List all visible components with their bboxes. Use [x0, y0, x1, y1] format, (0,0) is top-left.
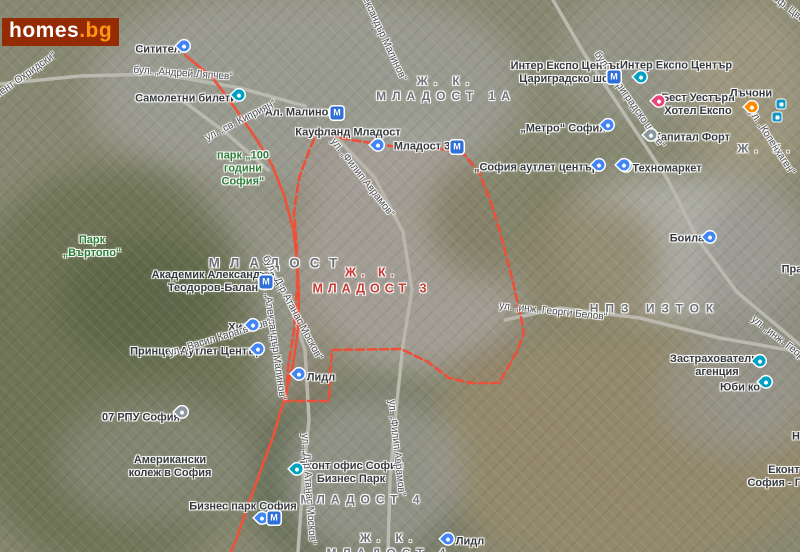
place-label-kaufland-mladost[interactable]: Кауфланд Младост: [295, 127, 400, 140]
district-label-mladost-3: Ж. К.МЛАДОСТ 3: [312, 264, 431, 296]
kaufland-pin-dot: [375, 142, 381, 148]
place-label-park-100-godini-sofia[interactable]: парк „100годиниСофия“: [217, 150, 269, 189]
place-label-american-college-sofia[interactable]: Американскиколеж в София: [129, 454, 212, 480]
hit-pin-dot: [250, 322, 256, 328]
place-label-lachoni[interactable]: Лъчони: [730, 88, 772, 101]
bus-stop-2-icon[interactable]: [773, 113, 782, 122]
boila-pin-dot: [707, 234, 713, 240]
district-label-zhk-mladost-4: Ж. К.МЛАДОСТ 4: [326, 530, 451, 552]
inter-expo-center-pin-dot: [638, 74, 644, 80]
place-label-praktiker[interactable]: Практикер: [782, 264, 800, 277]
place-label-metro-sofia[interactable]: „Метро“ София: [520, 123, 606, 136]
mladost-3-metro-icon[interactable]: М: [451, 141, 464, 154]
bus-stop-1-icon[interactable]: [777, 100, 786, 109]
map-viewport[interactable]: homes.bg Ж. К.МЛАДОСТ 1АМЛАДОСТЖ. К.МЛАД…: [0, 0, 800, 552]
kapital-fort-pin-dot: [648, 132, 654, 138]
ekont-business-park-pin-dot: [294, 466, 300, 472]
place-label-rpu-07-sofia[interactable]: 07 РПУ София: [102, 412, 180, 425]
samoletni-bileti-pin-dot: [236, 92, 242, 98]
al-malinov-metro-icon[interactable]: М: [331, 107, 344, 120]
place-label-zastrahovatelna-agencia[interactable]: Застрахователнаагенция: [670, 353, 764, 379]
place-label-boila[interactable]: Боила: [670, 233, 705, 246]
inter-expo-metro-icon[interactable]: М: [608, 71, 621, 84]
lachoni-pin-dot: [749, 104, 755, 110]
logo-text-suffix: .bg: [79, 19, 112, 42]
teodorov-balan-metro-icon[interactable]: М: [260, 276, 273, 289]
place-label-inter-expo-center[interactable]: Интер Експо Център: [620, 60, 732, 73]
homes-bg-logo: homes.bg: [2, 18, 119, 46]
place-label-samoletni-bileti[interactable]: Самолетни билети: [135, 93, 237, 106]
place-label-partial-n[interactable]: Н: [792, 431, 800, 444]
sofia-outlet-pin-2-dot: [621, 162, 627, 168]
place-label-lidl-west[interactable]: Лидл: [307, 372, 335, 385]
best-western-pin-dot: [656, 98, 662, 104]
business-park-pin-dot: [259, 515, 265, 521]
bus-stop-1-glyph: [779, 102, 783, 106]
district-label-npz-iztok: НПЗ ИЗТОК: [590, 300, 721, 315]
place-label-ekont-business-park[interactable]: Еконт офис СофияБизнес Парк: [299, 460, 403, 486]
place-label-best-western-hotel-expo[interactable]: Бест УестърнХотел Експо: [661, 92, 734, 118]
yubi-ko-pin-dot: [763, 379, 769, 385]
place-label-akademik-teodorov-balan[interactable]: Академик АлександърТеодоров-Балан: [152, 269, 275, 295]
rpu-07-pin-dot: [179, 409, 185, 415]
logo-text-main: homes: [9, 19, 79, 42]
place-label-park-vartopo[interactable]: Парк„Въртопо“: [63, 234, 122, 260]
metro-sofia-pin-dot: [605, 122, 611, 128]
princess-outlet-pin-dot: [255, 346, 261, 352]
lidl-south-pin-dot: [445, 536, 451, 542]
sititel-pin-dot: [181, 43, 187, 49]
place-label-lidl-south[interactable]: Лидл: [456, 536, 484, 549]
place-label-sofia-outlet-center[interactable]: „София аутлет център“: [474, 162, 604, 175]
bus-stop-2-glyph: [775, 115, 779, 119]
place-label-yubi-ko[interactable]: Юби ко: [720, 382, 760, 395]
business-park-metro-icon[interactable]: М: [268, 512, 281, 525]
lidl-west-pin-dot: [296, 371, 302, 377]
place-label-ekont-gorublyane[interactable]: Еконт офисСофия - Горубляне: [747, 464, 800, 490]
sofia-outlet-pin-1-dot: [596, 162, 602, 168]
zastrahovatelna-pin-dot: [757, 358, 763, 364]
place-label-mladost-3-station[interactable]: Младост 3: [394, 141, 451, 154]
place-label-sititel[interactable]: Ситител: [135, 44, 180, 57]
place-label-business-park-sofia[interactable]: Бизнес парк София: [189, 501, 296, 514]
place-label-tehnomarket[interactable]: Техномаркет: [632, 163, 701, 176]
